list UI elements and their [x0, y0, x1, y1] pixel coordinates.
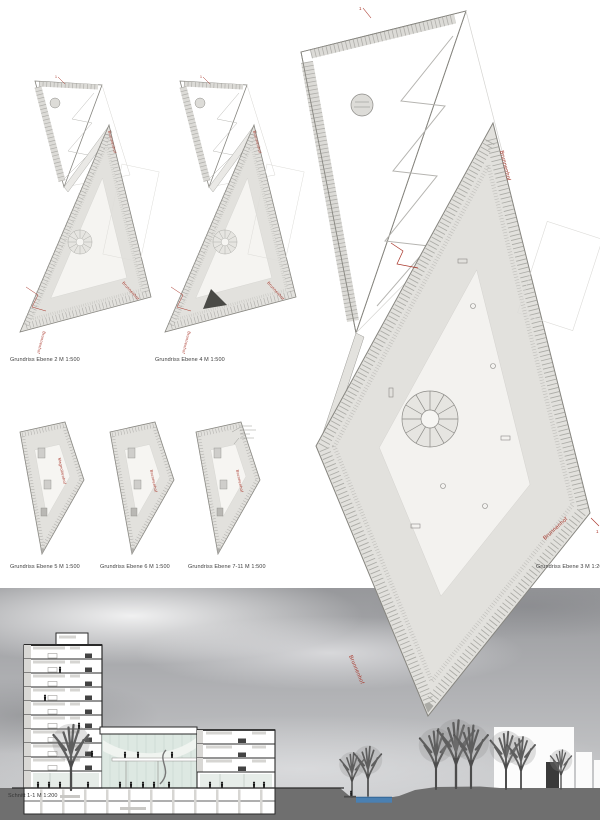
cut-mark: 1: [591, 518, 599, 534]
caption-ebene2: Grundriss Ebene 2 M 1:500: [10, 357, 80, 363]
stair-drum: [351, 94, 373, 116]
right-wing: [197, 730, 275, 788]
caption-ebene7-11: Grundriss Ebene 7-11 M 1:500: [188, 564, 266, 570]
plan-ebene3: 1 1 Brunnenhof Brunnenhof Brunnenhof: [293, 6, 600, 722]
pool: [356, 797, 392, 803]
caption-ebene3: Grundriss Ebene 3 M 1:200: [536, 564, 600, 570]
fountain-icon: [402, 391, 458, 447]
plan-ebene5: Magnolienhof: [8, 418, 93, 558]
plan-ebene4: [153, 75, 303, 360]
caption-ebene5: Grundriss Ebene 5 M 1:500: [10, 564, 80, 570]
cut-number: 1: [596, 529, 599, 534]
basement: [24, 788, 275, 814]
atrium: [100, 727, 197, 788]
plan-ebene7-11: Brunnenhof: [184, 418, 269, 558]
caption-ebene4: Grundriss Ebene 4 M 1:500: [155, 357, 225, 363]
courtyard-label: Brunnenhof: [347, 654, 365, 685]
cut-number: 1: [359, 6, 362, 11]
presentation-board: 1 Brunnenhof Brunnenhof Brunnenhof: [0, 0, 600, 820]
cut-mark: 1: [359, 6, 371, 18]
tower: [24, 633, 102, 788]
caption-ebene6: Grundriss Ebene 6 M 1:500: [100, 564, 170, 570]
plan-ebene6: Brunnenhof: [98, 418, 183, 558]
plan-ebene2: [8, 75, 158, 360]
caption-schnitt: Schnitt 1-1 M 1:200: [8, 793, 58, 799]
